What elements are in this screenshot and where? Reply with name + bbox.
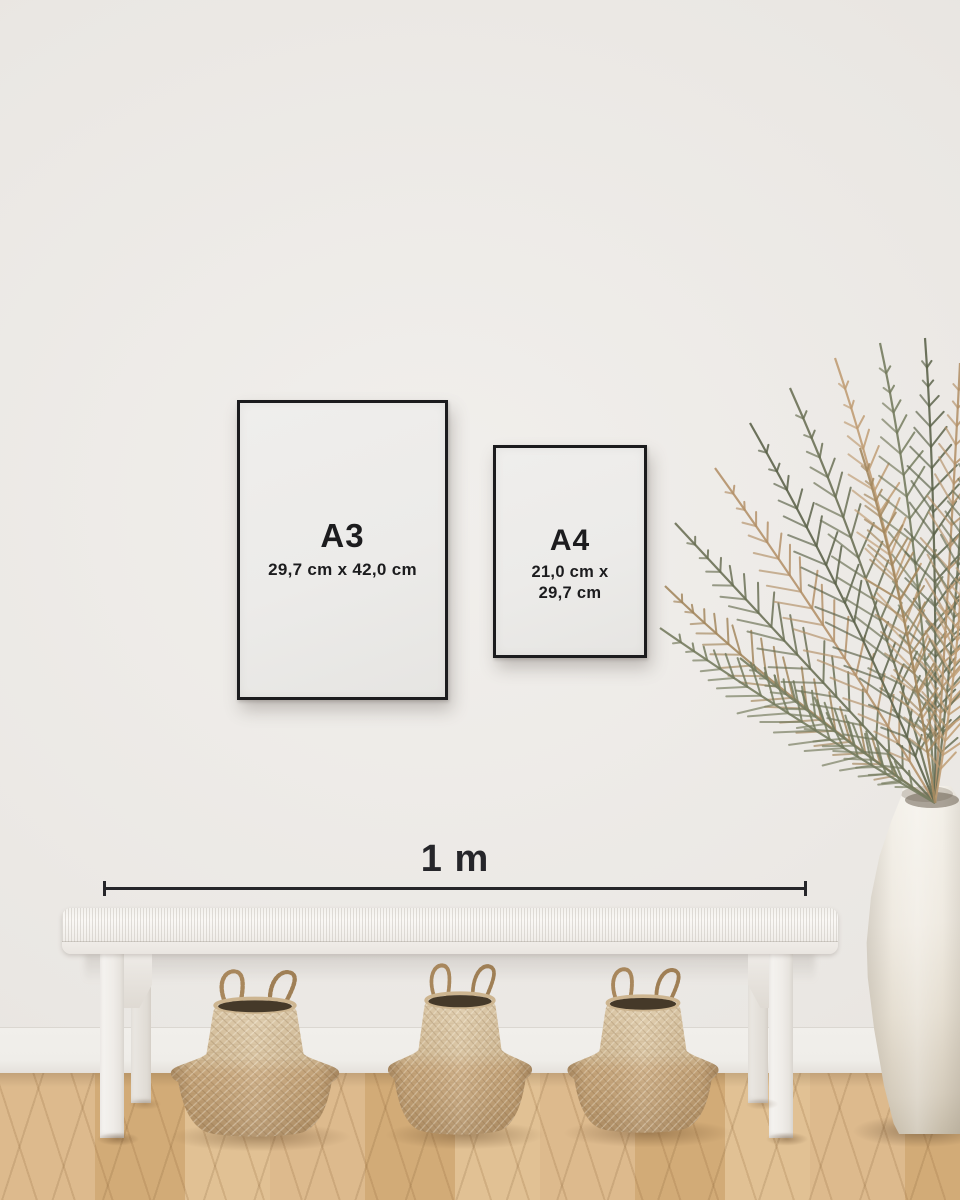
poster-frame-a3: A3 29,7 cm x 42,0 cm [237,400,448,700]
basket-2 [377,960,543,1138]
poster-a4-dimensions-line2: 29,7 cm [531,583,608,603]
scale-bar-tick-left [103,881,106,896]
leg-shadow [128,1098,162,1110]
bench-leg-front-left [100,950,124,1138]
leg-shadow [745,1098,779,1110]
dried-palm-plant [620,328,960,813]
poster-frame-a4: A4 21,0 cm x 29,7 cm [493,445,647,658]
scale-bar-line [103,887,807,890]
poster-a4-dimensions: 21,0 cm x 29,7 cm [531,562,608,602]
bench-seat [62,908,838,954]
basket-3 [556,964,730,1136]
scale-bar-tick-right [804,881,807,896]
poster-a3-dimensions: 29,7 cm x 42,0 cm [268,560,417,580]
basket-1 [158,966,352,1140]
scale-bar-label: 1 m [103,840,807,878]
room-scene: A3 29,7 cm x 42,0 cm A4 21,0 cm x 29,7 c… [0,0,960,1200]
poster-a4-size-label: A4 [550,526,590,556]
poster-a4-dimensions-line1: 21,0 cm x [531,562,608,582]
leg-shadow [96,1132,140,1146]
leg-shadow [765,1132,809,1146]
poster-a3-size-label: A3 [320,519,364,552]
